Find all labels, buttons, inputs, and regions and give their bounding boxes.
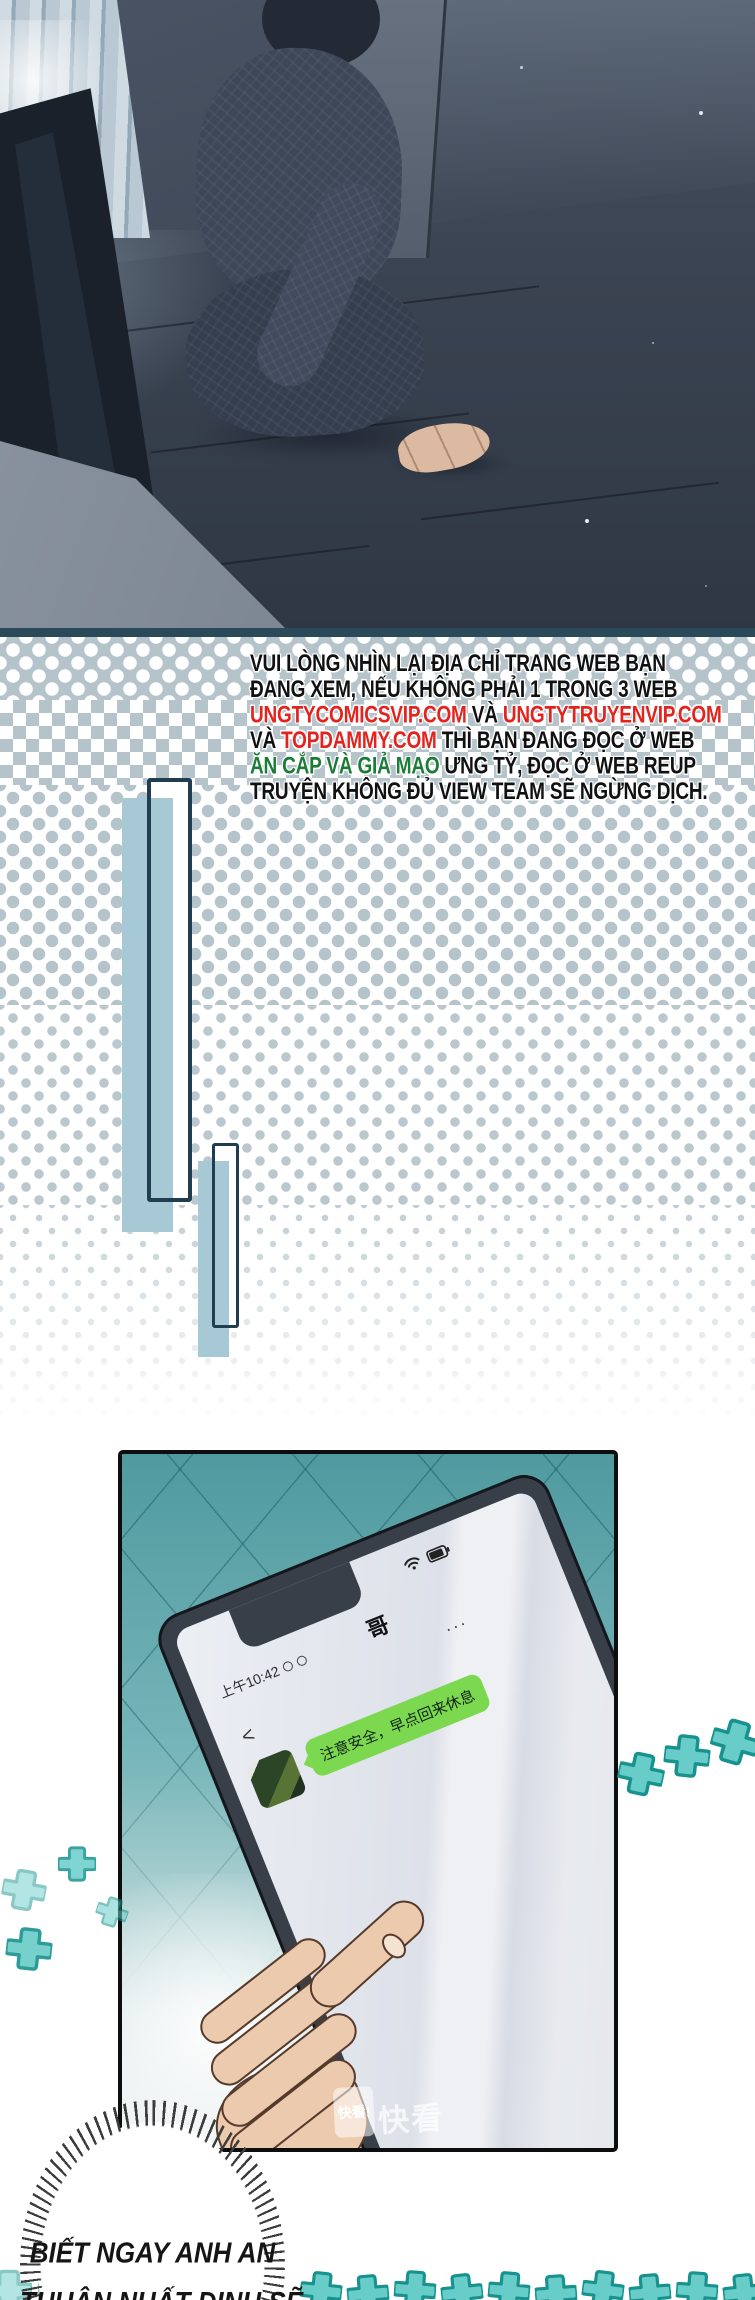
plus-decoration: [298, 2268, 344, 2300]
notice-line: VÀ TOPDAMMY.COM THÌ BẠN ĐANG ĐỌC Ở WEB: [250, 729, 750, 755]
mute-icon: [281, 1660, 294, 1673]
wifi-icon: [401, 1553, 423, 1573]
kuaikan-logo: 快看!: [333, 2086, 376, 2138]
site-url: UNGTYTRUYENVIP.COM: [503, 702, 722, 729]
notice-line: VUI LÒNG NHÌN LẠI ĐỊA CHỈ TRANG WEB BẠN: [250, 652, 750, 678]
speech-line: BIẾT NGAY ANH AN: [20, 2228, 285, 2277]
translator-notice: VUI LÒNG NHÌN LẠI ĐỊA CHỈ TRANG WEB BẠN …: [250, 652, 750, 806]
avatar: [245, 1748, 307, 1810]
sparkle: [699, 111, 703, 115]
halftone-band-mid: [0, 785, 755, 1005]
panel-border-strip: [0, 628, 755, 637]
halftone-band-fade: [0, 1205, 755, 1450]
notice-line: UNGTYCOMICSVIP.COM VÀ UNGTYTRUYENVIP.COM: [250, 703, 750, 729]
plus-decoration: [662, 1731, 713, 1782]
notice-line: TRUYỆN KHÔNG ĐỦ VIEW TEAM SẼ NGỪNG DỊCH.: [250, 780, 750, 806]
plus-decoration: [4, 1924, 55, 1975]
speech-line: THUẬN NHẤT ĐỊNH SẼ: [20, 2277, 285, 2300]
bar-outline-short: [212, 1143, 239, 1328]
chat-message-row: 注意安全，早点回来休息: [245, 1672, 496, 1811]
battery-icon: [425, 1542, 452, 1563]
warning-text: ĂN CẮP VÀ GIẢ MẠO: [250, 753, 439, 780]
panel-bedroom-scene: [0, 0, 755, 630]
plus-decoration: [486, 2268, 532, 2300]
plus-decoration: [58, 1845, 96, 1883]
plus-decoration: [534, 2272, 579, 2300]
plus-decoration: [0, 1865, 49, 1916]
bar-outline-tall: [147, 778, 192, 1202]
plus-decoration: [345, 2271, 391, 2300]
sparkle: [652, 342, 654, 344]
halftone-band-lower: [0, 1005, 755, 1205]
kuaikan-watermark: 快看: [377, 2092, 445, 2140]
site-url: UNGTYCOMICSVIP.COM: [250, 702, 467, 729]
plus-decoration: [580, 2267, 627, 2300]
notice-line: ĐANG XEM, NẾU KHÔNG PHẢI 1 TRONG 3 WEB: [250, 678, 750, 704]
sparkle: [705, 585, 707, 587]
back-icon: <: [238, 1723, 258, 1750]
system-icons: [401, 1542, 452, 1573]
plus-decoration: [627, 2270, 673, 2300]
panel-phone-scene: 上午10:42 哥 <: [118, 1450, 618, 2152]
wall-highlight: [400, 0, 755, 210]
plus-decoration: [393, 2268, 438, 2300]
more-menu-icon: ···: [442, 1613, 471, 1640]
sparkle: [520, 66, 523, 69]
notice-line: ĂN CẮP VÀ GIẢ MẠO ƯNG TỶ, ĐỌC Ở WEB REUP: [250, 754, 750, 780]
plus-decoration: [675, 2269, 720, 2300]
comic-page: VUI LÒNG NHÌN LẠI ĐỊA CHỈ TRANG WEB BẠN …: [0, 0, 755, 2300]
plus-decoration: [439, 2270, 485, 2300]
site-url: TOPDAMMY.COM: [281, 728, 437, 755]
chat-bubble: 注意安全，早点回来休息: [302, 1672, 492, 1779]
sparkle: [585, 519, 589, 523]
plus-decoration: [705, 1712, 755, 1771]
speech-bubble-text: BIẾT NGAY ANH AN THUẬN NHẤT ĐỊNH SẼ: [20, 2228, 285, 2300]
plus-decoration: [721, 2270, 755, 2300]
plus-decoration: [614, 1747, 669, 1802]
